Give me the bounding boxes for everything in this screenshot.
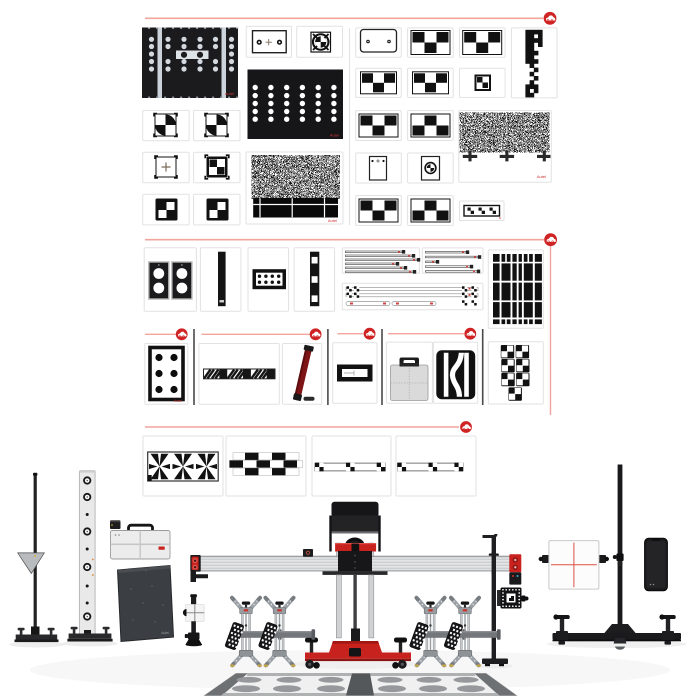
svg-text:Autel: Autel <box>174 399 182 403</box>
svg-text:Autel: Autel <box>330 133 339 138</box>
svg-text:Autel: Autel <box>225 91 234 96</box>
svg-text:Autel: Autel <box>537 174 546 179</box>
svg-text:Autel: Autel <box>328 218 337 223</box>
svg-text:Autel: Autel <box>161 631 169 635</box>
